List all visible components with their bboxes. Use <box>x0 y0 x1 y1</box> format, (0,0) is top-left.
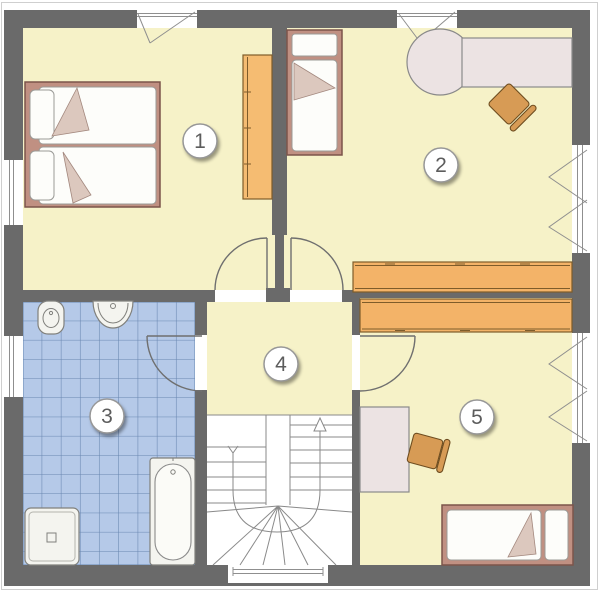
shower-tray <box>25 508 79 565</box>
wall-hall-room5-upper <box>352 298 360 335</box>
wardrobe <box>243 55 272 199</box>
room-2-badge: 2 <box>424 148 458 182</box>
bathroom-door-opening <box>195 335 207 390</box>
bidet <box>38 301 64 334</box>
wall-bath-hall-lower <box>195 390 207 565</box>
room-1-badge: 1 <box>183 124 217 158</box>
floor-plan-drawing: 1 2 3 4 5 <box>0 0 600 592</box>
room-5-number: 5 <box>471 406 483 429</box>
pillow <box>292 34 337 56</box>
window-bottom-stairwell <box>228 565 328 583</box>
wall-room1-room2-spine <box>275 235 284 292</box>
tub-basin <box>155 464 191 560</box>
mattress <box>39 147 156 204</box>
room-5-door-opening <box>352 335 360 390</box>
wall-bath-hall-upper <box>195 302 207 335</box>
wall-room1-bath <box>23 290 215 302</box>
desk-room5 <box>360 407 409 492</box>
double-bed <box>25 82 160 207</box>
sideboard-room2 <box>353 262 572 292</box>
floor-plan: 1 2 3 4 5 <box>0 0 600 592</box>
room-5-badge: 5 <box>460 400 494 434</box>
room-4-badge: 4 <box>264 347 298 381</box>
room-2-door-opening <box>290 290 342 302</box>
room-4-number: 4 <box>275 353 287 376</box>
pillow <box>545 510 568 560</box>
room-2-number: 2 <box>435 154 447 177</box>
window-left-bathroom <box>4 336 23 397</box>
room-3-number: 3 <box>101 405 113 428</box>
wall-hall-room5-lower <box>352 390 360 565</box>
room-1-number: 1 <box>194 130 206 153</box>
single-bed <box>287 30 342 155</box>
bathtub <box>150 458 195 565</box>
pillow <box>30 151 54 200</box>
pillow <box>30 90 54 139</box>
wall-door-pier <box>266 288 290 302</box>
room-1-door-opening <box>215 290 266 302</box>
wall-outer-right <box>572 10 590 586</box>
desk-room2 <box>407 29 572 95</box>
room-3-badge: 3 <box>90 399 124 433</box>
wall-outer-left <box>4 10 23 586</box>
single-bed-room5 <box>442 505 573 565</box>
sideboard-room5 <box>360 299 572 332</box>
wall-room1-room2 <box>272 28 287 235</box>
wall-outer-top <box>4 10 590 28</box>
window-left-room1 <box>4 160 23 225</box>
